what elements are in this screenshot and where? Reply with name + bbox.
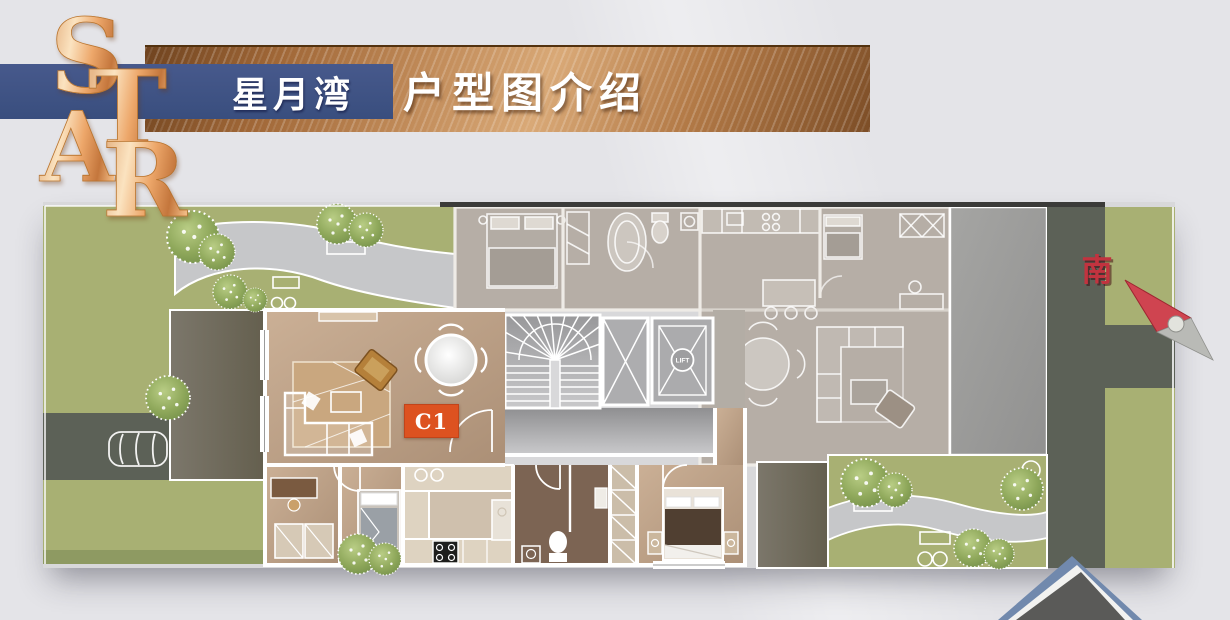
slide-floor-plan: { "logo": { "name": "STAR", "letters": […	[0, 0, 1230, 620]
corner-triangle-decoration	[990, 540, 1230, 620]
lift-label: LIFT	[676, 358, 690, 365]
unit-label-badge: C1	[404, 404, 459, 438]
elevator: LIFT	[652, 318, 713, 403]
toilet	[549, 553, 567, 562]
staircase	[505, 315, 600, 408]
unit-label: C1	[415, 409, 448, 434]
tv-console	[319, 312, 377, 321]
fridge	[492, 500, 512, 540]
desk	[271, 478, 317, 498]
driveway	[43, 413, 170, 480]
page-title: 户型图介绍	[403, 59, 648, 120]
project-name: 星月湾	[232, 66, 355, 118]
stair-landing	[505, 408, 715, 455]
logo-letter-r: R	[102, 130, 187, 232]
stair-lift-core: LIFT	[505, 310, 745, 455]
south-label: 南	[1082, 253, 1113, 288]
floor-plan: LIFT	[43, 202, 1175, 568]
star-logo: S T A R	[0, 0, 220, 250]
shaft-x	[603, 318, 648, 405]
plan-top-edge	[440, 202, 1105, 207]
floor-plan-drawing: LIFT	[43, 202, 1175, 568]
compass-needle-hole	[1168, 316, 1184, 332]
ghost-terrace	[950, 207, 1047, 455]
